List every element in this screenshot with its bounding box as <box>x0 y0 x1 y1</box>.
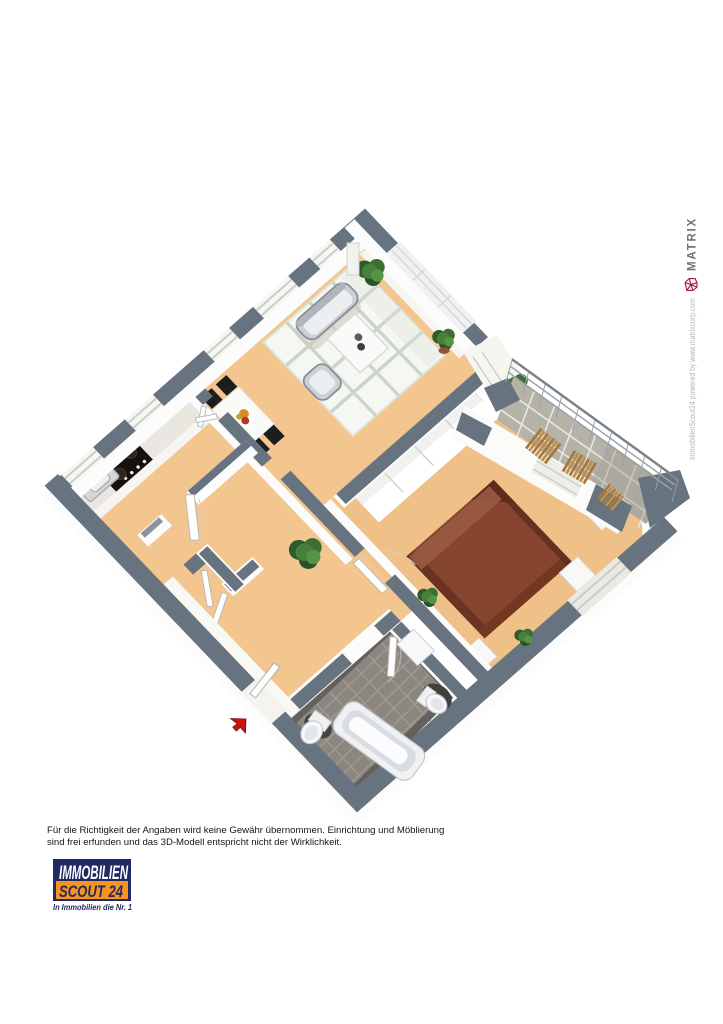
svg-text:MATRIX: MATRIX <box>687 217 699 271</box>
svg-text:In Immobilien die Nr. 1: In Immobilien die Nr. 1 <box>53 903 133 912</box>
svg-text:IMMOBILIEN: IMMOBILIEN <box>59 863 129 884</box>
svg-text:SCOUT 24: SCOUT 24 <box>59 882 123 901</box>
svg-text:ImmobilienScout24 powered by w: ImmobilienScout24 powered by www.matrixc… <box>687 298 697 460</box>
